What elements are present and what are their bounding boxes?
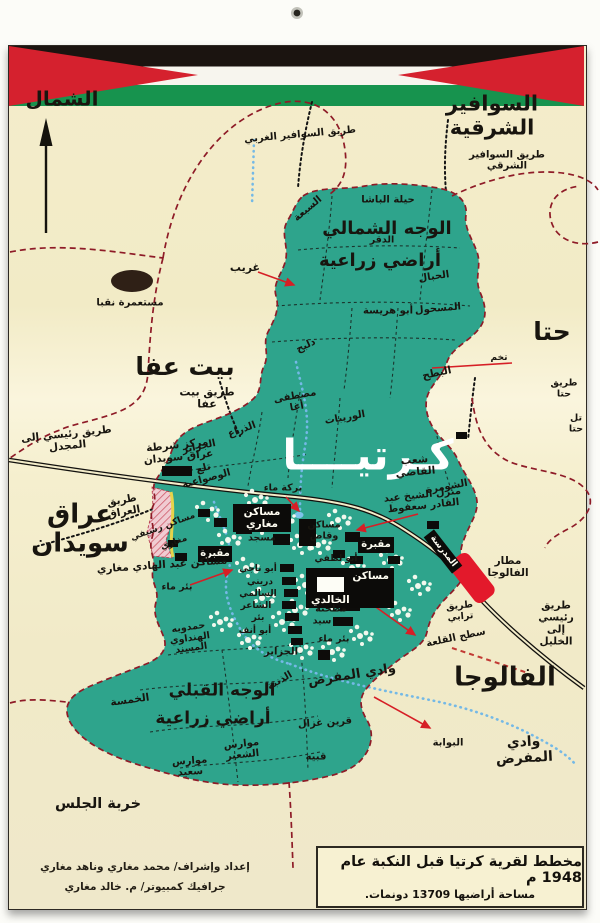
scanned-map-page: مساكن مغاريمقبرةمقبرةمساكنالخالديالمدرسة… <box>0 0 600 923</box>
station-yellow-strip <box>171 492 173 557</box>
credits-line-2: جرافيك كمبيوتر/ م. خالد مغاري <box>30 878 260 898</box>
credits-line-1: إعداد وإشراف/ محمد مغاري وناهد مغاري <box>30 858 260 878</box>
palestinian-flag-banner <box>9 46 584 106</box>
north-arrow-icon <box>40 118 53 233</box>
map-graphics <box>0 0 600 923</box>
red-leader-arrow <box>374 697 430 728</box>
castle-red-dashed-line <box>452 648 528 673</box>
map-caption-box: مخطط لقرية كرتيا قبل النكبة عام 1948 م م… <box>316 846 584 908</box>
nuqba-colony-mark <box>111 270 153 292</box>
credits-block: إعداد وإشراف/ محمد مغاري وناهد مغاري جرا… <box>30 858 260 898</box>
caption-title: مخطط لقرية كرتيا قبل النكبة عام 1948 م <box>318 854 582 886</box>
water-pond <box>295 512 304 518</box>
caption-area: مساحة أراضيها 13709 دونمات. <box>365 888 535 901</box>
